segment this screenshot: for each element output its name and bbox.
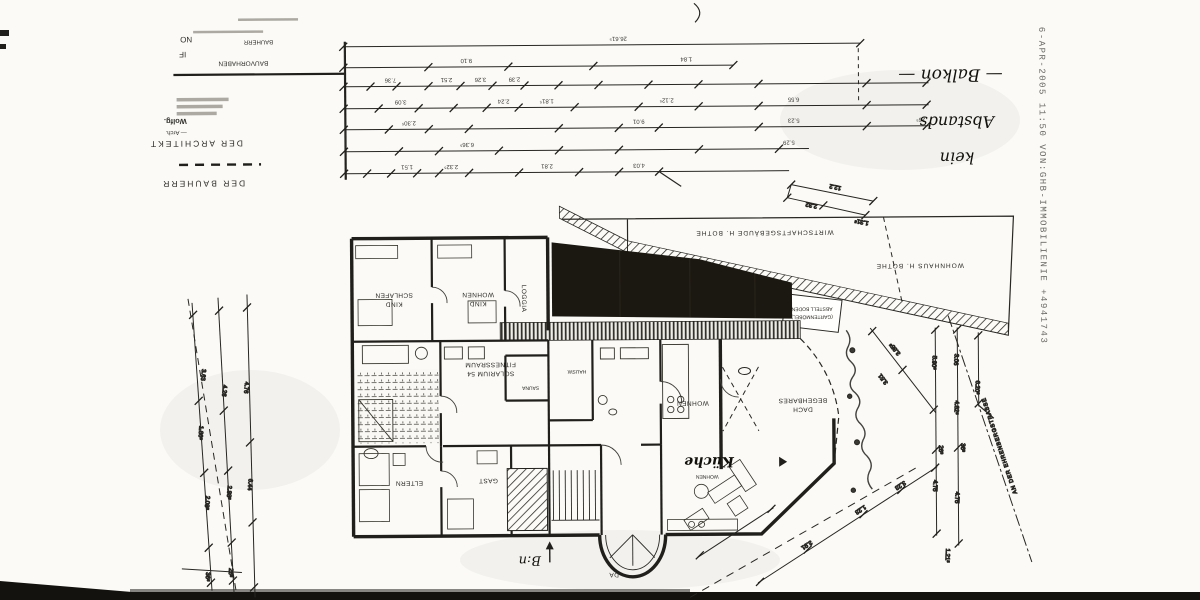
dim-label: 9.01	[632, 118, 644, 124]
dim-label: 2.81	[541, 162, 553, 168]
room-label-kueche-handwritten: Küche	[684, 453, 735, 469]
wc-fixtures	[598, 344, 689, 419]
dim-label: 5.23	[787, 117, 799, 123]
dim-label: 3.51	[877, 372, 889, 385]
dim-label: 26.61⁵	[609, 35, 627, 42]
street-boundary-line	[948, 315, 1032, 563]
scanned-floor-plan-page: NO IF BAUHERR BAUVORHABEN Wolfg. — Arch.…	[0, 0, 1200, 600]
dim-label: 3.26	[474, 76, 486, 82]
dim-label: 4.75	[931, 480, 938, 493]
dim-label: 1.86⁵	[196, 426, 204, 441]
dim-label: 9.10	[460, 57, 472, 63]
shed-label-1: ABSTELL BODEN	[791, 305, 832, 311]
room-label-schlafen-kind: KIND	[385, 300, 402, 307]
handwriting-balkon: — Balkon —	[898, 64, 1002, 85]
room-label-da: DA	[609, 571, 619, 578]
dim-label: 6.44	[246, 478, 253, 491]
stairs	[507, 468, 599, 531]
bauherr-small-label: BAUHERR	[243, 38, 273, 44]
balcony-railing	[500, 321, 800, 341]
dim-label: 6.20³	[973, 380, 980, 394]
room-label-fitness: FITNESSRAUM	[465, 361, 516, 368]
room-label-gast: GAST	[479, 477, 498, 484]
dimension-chain-topright: 12.2 2.32 1.31⁵	[783, 180, 877, 227]
bauvorhaben-label: BAUVORHABEN	[218, 59, 268, 66]
dim-label: 4.82⁵	[952, 400, 960, 415]
architect-prefix: — Arch.	[165, 129, 187, 135]
dim-label: 2.32⁵	[443, 163, 458, 170]
dimension-chains-right: 3.85⁵ 3.51 5.90⁵ 4.75 3.06 4.82⁵ 4.75 6.…	[846, 315, 1032, 563]
room-label-schlafen: SCHLAFEN	[375, 291, 413, 298]
handwritten-note-bottom: B:n	[519, 552, 542, 567]
title-fragment-if: IF	[179, 50, 186, 59]
dim-label: 6.36⁵	[459, 141, 474, 148]
floor-plan: SCHLAFEN KIND WOHNEN KIND LOGGIA FITNESS…	[352, 235, 840, 579]
room-label-hausw: HAUSW.	[567, 368, 587, 374]
street-name-label: AN DER EHRENBERGSTRASSE	[981, 397, 1019, 495]
architect-name: Wolfg.	[164, 117, 187, 126]
dim-label: 5.90⁵	[930, 356, 938, 371]
dim-label: 1.21⁵	[943, 548, 951, 563]
handwriting-kein: kein	[940, 148, 975, 167]
dim-label: 26³	[937, 445, 943, 454]
fax-header-text: 6-APR-2005 11:50 VON:GHB-IMMOBILIENIE +4…	[1036, 27, 1048, 345]
hedge-line	[846, 330, 872, 489]
dim-label: 4.26	[220, 385, 227, 398]
dim-label: 2.08⁵	[203, 496, 211, 511]
dim-label: 36⁵	[204, 572, 212, 582]
dim-label: 26⁵	[226, 568, 234, 578]
room-label-sauna: SAUNA	[521, 384, 539, 390]
dim-label: 1.84	[680, 55, 692, 61]
dim-label: 2.30⁵	[401, 119, 416, 126]
dim-label: 2.39	[508, 76, 520, 82]
dim-label: 1.81⁵	[539, 97, 554, 104]
neighbor-wohnhaus-label: WOHNHAUS H. BOTHE	[876, 261, 964, 269]
room-label-solarium: SOLARIUM 54	[467, 370, 514, 377]
room-label-loggia: LOGGIA	[520, 285, 527, 313]
dim-label: 5.29	[782, 139, 794, 145]
room-label-begehbares: BEGEHBARES	[778, 396, 827, 403]
dach-x-mark	[722, 367, 758, 431]
der-architekt-label: DER ARCHITEKT	[149, 138, 243, 149]
dim-label: 12.2	[828, 182, 841, 190]
dim-label: 3.63	[199, 369, 206, 382]
shed-label-2: (GARTENMÖBEL)	[791, 313, 833, 320]
dim-label: 2.88⁵	[225, 485, 233, 500]
room-label-dach: DACH	[793, 406, 813, 413]
room-label-wohnen: WOHNEN	[677, 399, 709, 406]
dim-label: 2.24	[497, 98, 509, 104]
room-label-kueche-sub: WOHNEN	[695, 473, 718, 479]
title-fragment-no: NO	[180, 35, 192, 44]
dim-label: 4.76	[242, 381, 249, 394]
dim-label: 3.09	[394, 98, 406, 104]
room-label-eltern: ELTERN	[395, 479, 423, 486]
dim-label: 7.36	[384, 76, 396, 82]
dim-label: 3.06	[952, 354, 959, 367]
dim-label: 1.51	[401, 163, 413, 169]
dim-label: 1.31⁵	[853, 217, 869, 227]
dim-label: 4.75	[953, 492, 960, 505]
dim-label: 4.03	[633, 162, 645, 168]
dim-label: 36³	[959, 443, 965, 452]
dim-label: 2.12⁵	[659, 96, 674, 103]
neighbor-wirtschaft-label: WIRTSCHAFTSGEBÄUDE H. BOTHE	[695, 228, 833, 237]
title-block: NO IF BAUHERR BAUVORHABEN Wolfg. — Arch.…	[148, 18, 346, 189]
floor-plan-drawing: NO IF BAUHERR BAUVORHABEN Wolfg. — Arch.…	[0, 0, 1200, 600]
handwriting-abstands: Abstands	[919, 112, 996, 132]
room-label-wohnen-kind: WOHNEN	[462, 291, 494, 298]
dim-label: 2.51	[440, 76, 452, 82]
dim-label: 2.32	[805, 200, 818, 208]
dim-label: 3.23	[893, 479, 907, 491]
room-label-wohnen-kind2: KIND	[469, 300, 486, 307]
dim-label: 6.55	[787, 96, 799, 102]
der-bauherr-label: DER BAUHERR	[161, 178, 245, 189]
